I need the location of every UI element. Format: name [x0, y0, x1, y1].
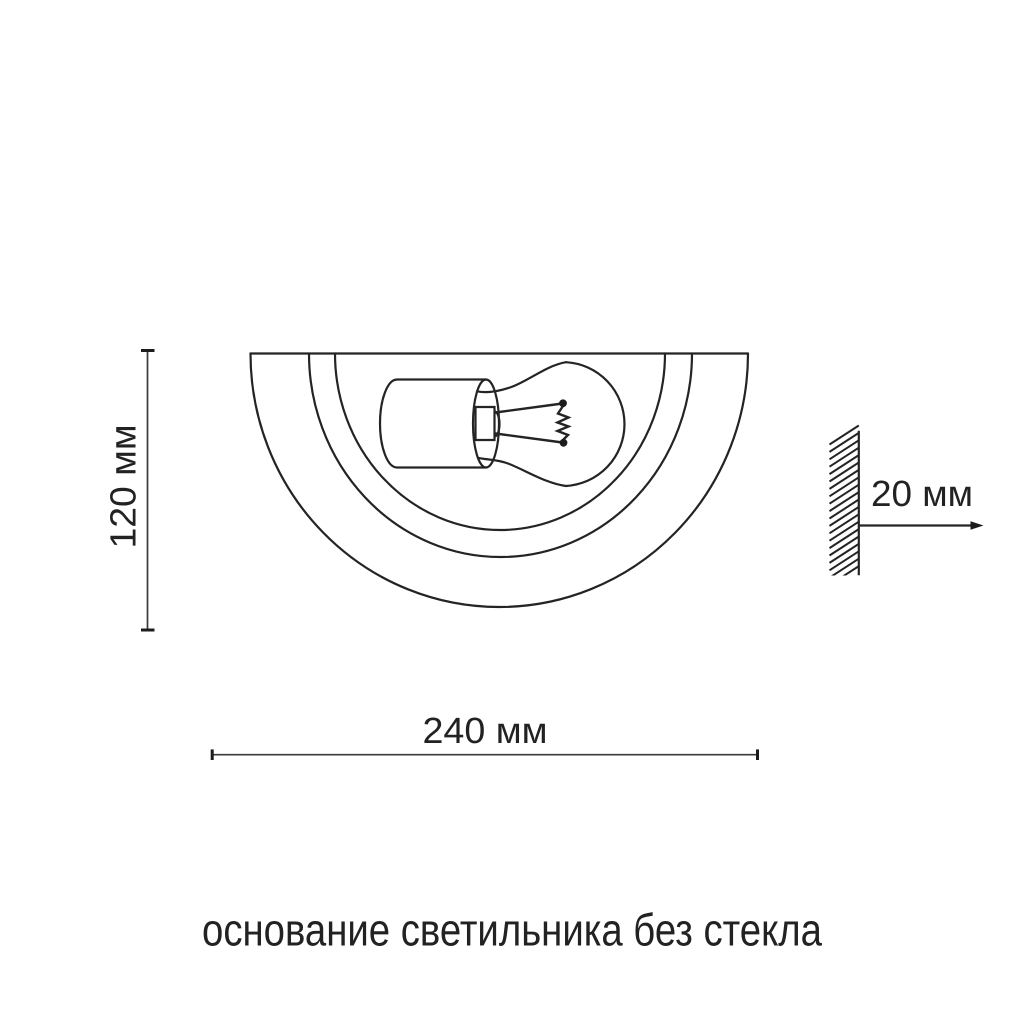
svg-text:основание светильника без стек: основание светильника без стекла: [202, 905, 823, 956]
svg-text:120 мм: 120 мм: [103, 425, 144, 549]
svg-text:20 мм: 20 мм: [871, 473, 973, 514]
svg-text:240 мм: 240 мм: [423, 710, 548, 751]
